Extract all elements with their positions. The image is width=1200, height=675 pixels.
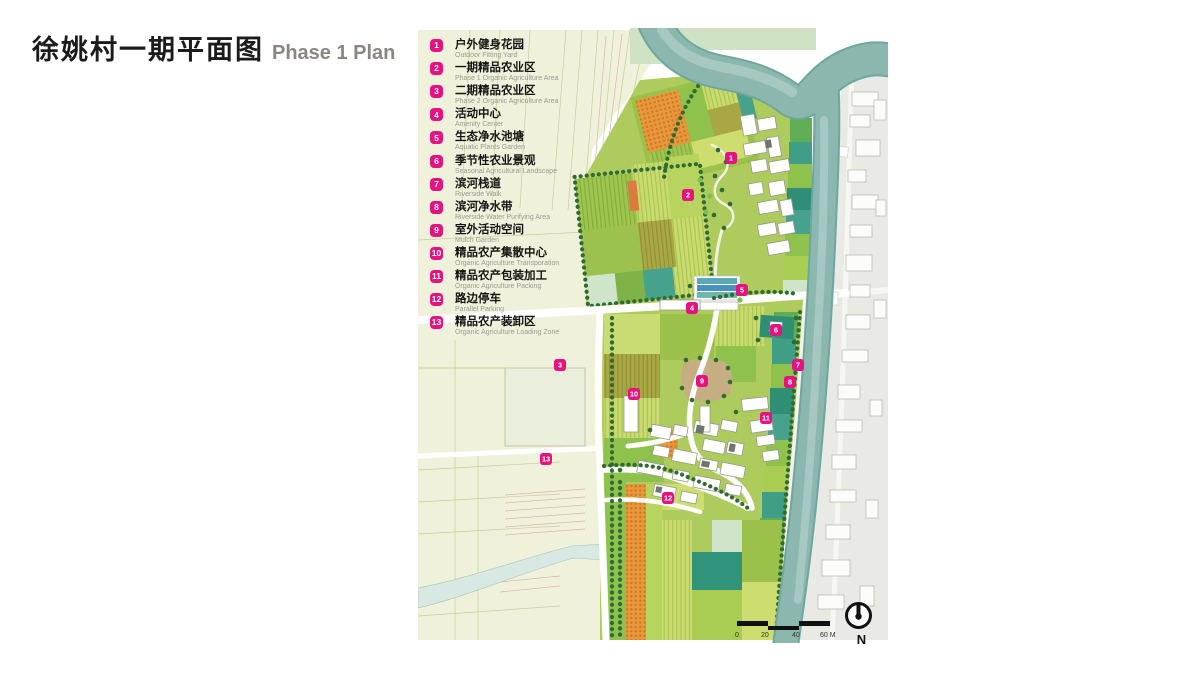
slide-canvas: 徐姚村一期平面图Phase 1 Plan <box>0 0 1200 675</box>
north-label: N <box>845 632 878 647</box>
map-marker-9: 9 <box>696 375 708 387</box>
svg-text:12: 12 <box>664 494 672 503</box>
map-marker-4: 4 <box>686 302 698 314</box>
svg-text:3: 3 <box>558 361 562 370</box>
map-marker-6: 6 <box>770 324 782 336</box>
svg-text:8: 8 <box>788 378 792 387</box>
svg-text:11: 11 <box>762 414 770 423</box>
scale-label: 40 <box>792 632 800 639</box>
svg-text:10: 10 <box>630 390 638 399</box>
map-marker-11: 11 <box>760 412 772 424</box>
north-arrow-icon <box>845 602 872 629</box>
map-marker-7: 7 <box>792 359 804 371</box>
scale-label: 60 M <box>820 632 836 639</box>
site-plan-drawing: 12345678910111213 <box>418 28 888 643</box>
page-title: 徐姚村一期平面图Phase 1 Plan <box>32 28 395 67</box>
svg-text:6: 6 <box>774 326 778 335</box>
title-chinese: 徐姚村一期平面图 <box>32 35 264 65</box>
svg-text:13: 13 <box>542 455 550 464</box>
map-marker-2: 2 <box>682 189 694 201</box>
map-marker-3: 3 <box>554 359 566 371</box>
svg-text:9: 9 <box>700 377 704 386</box>
site-plan-map: 12345678910111213 0204060 M N <box>418 28 888 643</box>
map-marker-1: 1 <box>725 152 737 164</box>
title-english: Phase 1 Plan <box>272 42 395 64</box>
map-marker-13: 13 <box>540 453 552 465</box>
scale-segment <box>799 621 830 626</box>
scale-bar: 0204060 M <box>735 619 845 641</box>
scale-label: 20 <box>761 632 769 639</box>
map-marker-12: 12 <box>662 492 674 504</box>
map-marker-5: 5 <box>736 284 748 296</box>
svg-text:7: 7 <box>796 361 800 370</box>
svg-text:2: 2 <box>686 191 690 200</box>
svg-text:5: 5 <box>740 286 744 295</box>
scale-label: 0 <box>735 632 739 639</box>
svg-text:1: 1 <box>729 154 733 163</box>
map-marker-10: 10 <box>628 388 640 400</box>
map-marker-8: 8 <box>784 376 796 388</box>
scale-segment <box>737 621 768 626</box>
scale-segment <box>768 626 799 631</box>
